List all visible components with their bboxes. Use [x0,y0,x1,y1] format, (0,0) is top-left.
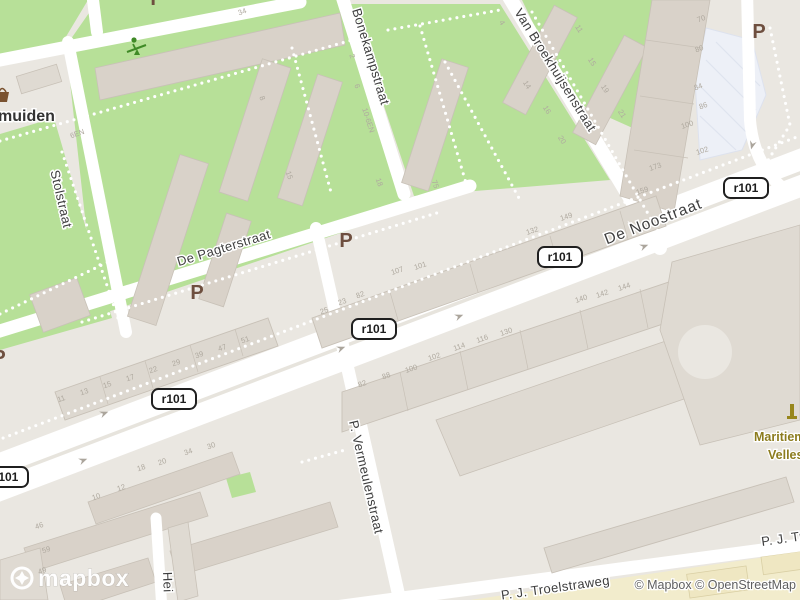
route-shield: r101 [538,247,582,267]
svg-text:r101: r101 [548,250,573,264]
svg-text:r101: r101 [0,470,19,484]
svg-text:r101: r101 [734,181,759,195]
map-viewport[interactable]: 1113151722293947512523821071011321491597… [0,0,800,600]
place-labels: muiden [0,108,55,125]
road-stub-top [92,0,97,32]
route-shield: r101 [724,178,768,198]
map-attribution[interactable]: © Mapbox © OpenStreetMap [634,578,796,592]
svg-text:r101: r101 [162,392,187,406]
parking-symbol: P [752,21,765,43]
map-canvas[interactable]: 1113151722293947512523821071011321491597… [0,0,800,600]
street-label: Hei [160,572,176,593]
poi-label: Velles [768,448,800,462]
poi-label: Maritiem [754,430,800,444]
route-shield: r101 [352,319,396,339]
svg-text:r101: r101 [362,322,387,336]
route-shield: r101 [0,467,28,487]
parking-symbol: P [0,347,6,369]
mapbox-wordmark: mapbox [38,565,129,591]
parking-symbol: P [150,0,163,10]
parking-symbol: P [190,282,203,304]
route-shield: r101 [152,389,196,409]
place-label: muiden [0,108,55,125]
parking-symbol: P [339,230,352,252]
